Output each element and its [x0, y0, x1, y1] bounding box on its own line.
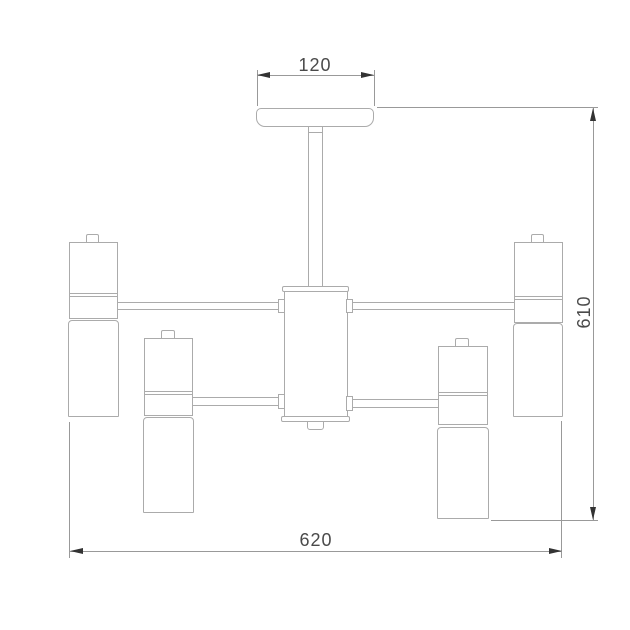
dim-610-label: 610 [575, 284, 593, 340]
dim-610-extension-top [377, 107, 598, 108]
dim-620-extension-left [69, 422, 70, 558]
hub-body [284, 291, 348, 417]
dim-610-arrow-top [590, 108, 596, 121]
lamp-inner-left-shade [143, 417, 194, 513]
ceiling-canopy [256, 108, 374, 127]
lamp-outer-left-shade [68, 320, 119, 417]
dim-620-extension-right [561, 421, 562, 558]
lower-arm-left [193, 397, 279, 406]
upper-arm-left-joint [278, 299, 285, 313]
lower-arm-right [352, 399, 438, 408]
stem-collar-line [308, 132, 323, 133]
dim-620-arrow-right [549, 548, 562, 554]
lamp-outer-left-divider [69, 293, 118, 297]
dim-610-arrow-bottom [590, 507, 596, 520]
dim-120-arrow-left [257, 72, 270, 78]
lamp-inner-right-holder [438, 346, 488, 425]
upper-arm-right [352, 302, 514, 310]
lower-arm-right-joint [346, 396, 353, 411]
lamp-outer-right-divider [514, 296, 563, 300]
dim-620-label: 620 [288, 531, 344, 549]
dim-620-arrow-left [70, 548, 83, 554]
dim-120-line [257, 75, 375, 76]
lower-arm-left-joint [278, 394, 285, 409]
lamp-inner-left-divider [144, 391, 193, 395]
upper-arm-left [117, 302, 279, 310]
lamp-inner-right-shade [437, 427, 489, 519]
dim-610-extension-bottom [491, 520, 598, 521]
hub-bottom-tab [307, 421, 324, 430]
lamp-outer-right-shade [513, 323, 563, 417]
hanging-stem [308, 126, 323, 292]
lamp-outer-left-holder [69, 242, 118, 319]
dim-120-arrow-right [361, 72, 374, 78]
lamp-inner-right-divider [438, 392, 488, 396]
lamp-inner-left-holder [144, 338, 193, 416]
upper-arm-right-joint [346, 299, 353, 313]
dim-120-label: 120 [287, 56, 343, 74]
lamp-outer-right-holder [514, 242, 563, 323]
dim-620-line [70, 551, 562, 552]
chandelier-dimension-drawing: 120 620 610 [0, 0, 630, 630]
